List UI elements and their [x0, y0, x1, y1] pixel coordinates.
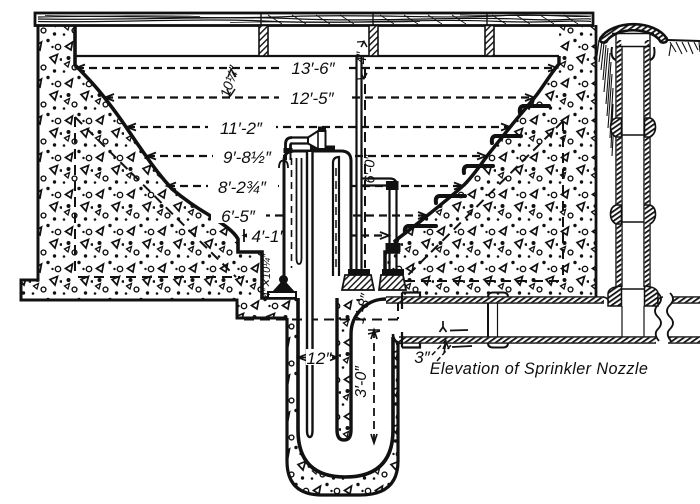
svg-text:9′-8½″: 9′-8½″: [223, 148, 272, 167]
svg-text:Elevation of Sprinkler Nozzle: Elevation of Sprinkler Nozzle: [430, 360, 649, 378]
svg-text:3″: 3″: [414, 348, 430, 367]
svg-text:12′-5″: 12′-5″: [290, 89, 334, 108]
svg-text:6′-5″: 6′-5″: [221, 207, 256, 226]
svg-text:3′-0″: 3′-0″: [353, 365, 370, 398]
svg-text:4″: 4″: [353, 51, 369, 65]
svg-text:8′-2¾″: 8′-2¾″: [218, 178, 267, 197]
svg-text:6′-0″: 6′-0″: [363, 154, 379, 184]
svg-text:11′-2″: 11′-2″: [220, 119, 263, 138]
svg-text:13′-6″: 13′-6″: [291, 59, 335, 78]
svg-text:4′-1′: 4′-1′: [252, 227, 284, 246]
svg-text:12″: 12″: [307, 349, 333, 368]
svg-text:4″✕10¼″: 4″✕10¼″: [261, 253, 273, 299]
